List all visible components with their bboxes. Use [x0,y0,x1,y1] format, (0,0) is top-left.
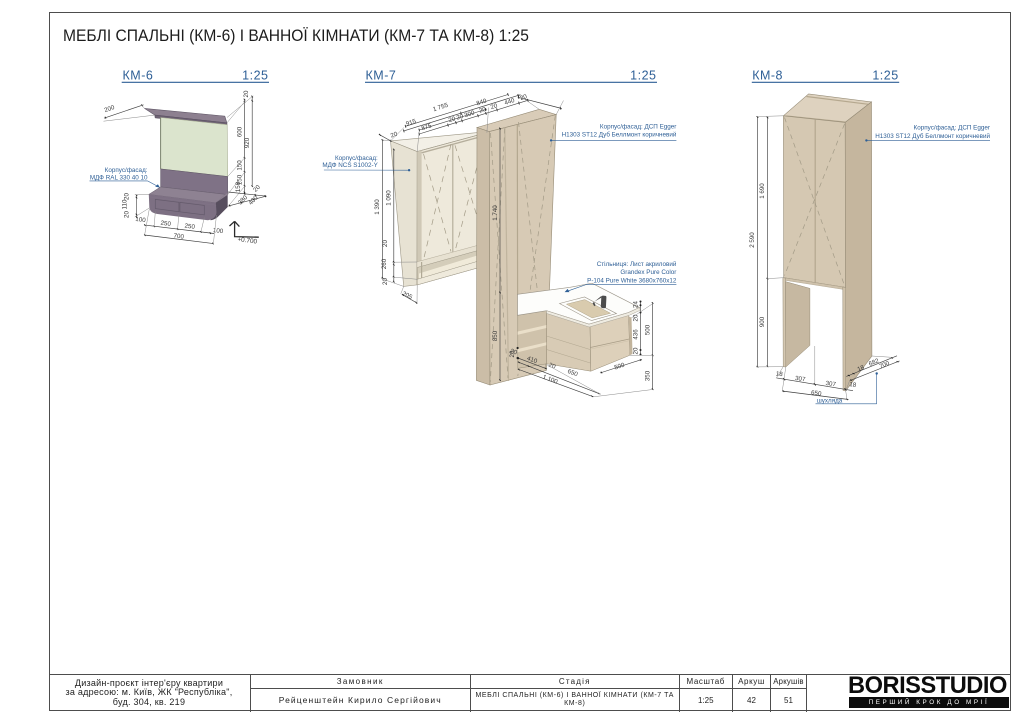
svg-text:307: 307 [795,375,807,383]
svg-text:150: 150 [236,160,243,171]
svg-text:Корпус/фасад: ДСП Egger: Корпус/фасад: ДСП Egger [914,124,990,131]
svg-text:Стільниця: Лист акриловий: Стільниця: Лист акриловий [597,260,677,268]
svg-text:850: 850 [492,330,499,341]
svg-text:436: 436 [632,329,639,340]
svg-text:100: 100 [135,216,147,224]
svg-text:20: 20 [390,131,399,140]
svg-text:440: 440 [504,97,517,107]
svg-text:150: 150 [235,181,242,192]
svg-text:2 590: 2 590 [749,232,756,248]
svg-text:205: 205 [401,290,414,301]
svg-text:1 740: 1 740 [492,205,499,221]
svg-text:1:25: 1:25 [242,69,268,83]
svg-text:КМ-7: КМ-7 [366,69,397,83]
svg-text:20: 20 [252,183,262,193]
svg-text:700: 700 [878,360,891,371]
svg-text:18: 18 [849,381,857,389]
svg-text:260: 260 [381,258,388,269]
svg-text:500: 500 [614,361,627,371]
svg-text:КМ-8: КМ-8 [752,69,783,83]
svg-text:900: 900 [759,316,766,327]
svg-text:600: 600 [236,126,243,137]
svg-text:400: 400 [247,194,260,207]
svg-text:700: 700 [173,232,185,240]
svg-text:20: 20 [124,193,131,200]
svg-text:20: 20 [243,90,250,97]
svg-text:500: 500 [644,324,651,335]
svg-text:24: 24 [632,301,639,308]
svg-text:650: 650 [566,368,579,378]
svg-text:20: 20 [382,240,389,247]
svg-text:20: 20 [632,347,639,354]
svg-text:200: 200 [103,104,116,114]
svg-text:МДФ NCS S1002-Y: МДФ NCS S1002-Y [322,162,378,169]
svg-text:1 390: 1 390 [374,199,381,215]
svg-text:920: 920 [244,137,251,148]
svg-text:P-104 Pure White 3680x760x12: P-104 Pure White 3680x760x12 [587,278,677,285]
svg-text:250: 250 [184,223,196,231]
svg-text:20: 20 [124,211,131,218]
svg-text:110: 110 [122,199,129,209]
svg-text:307: 307 [825,380,837,388]
svg-text:+0.700: +0.700 [237,236,258,245]
svg-text:650: 650 [811,389,823,397]
svg-text:875: 875 [421,122,434,132]
svg-text:H1303 ST12 Дуб Беллмонт коричн: H1303 ST12 Дуб Беллмонт коричневий [562,131,677,139]
svg-text:Grandex Pure Color: Grandex Pure Color [620,269,676,276]
svg-text:915: 915 [405,118,418,128]
svg-text:Корпус/фасад:: Корпус/фасад: [105,167,148,174]
svg-text:1 090: 1 090 [386,190,393,206]
svg-text:1:25: 1:25 [630,69,656,83]
svg-text:250: 250 [160,220,172,228]
svg-text:1 755: 1 755 [432,102,449,114]
svg-text:КМ-6: КМ-6 [123,69,154,83]
svg-text:1 100: 1 100 [542,374,559,386]
svg-text:1 690: 1 690 [759,183,766,199]
svg-text:300: 300 [464,109,477,119]
svg-text:1:25: 1:25 [872,69,898,83]
svg-text:МДФ RAL 330 40 10: МДФ RAL 330 40 10 [90,174,148,181]
svg-text:380: 380 [237,194,250,207]
svg-text:20: 20 [382,278,389,285]
svg-text:H1303 ST12 Дуб Беллмонт коричн: H1303 ST12 Дуб Беллмонт коричневий [875,132,990,140]
svg-text:Корпус/фасад: ДСП Egger: Корпус/фасад: ДСП Egger [600,123,676,130]
svg-text:350: 350 [644,370,651,381]
svg-text:Корпус/фасад:: Корпус/фасад: [335,155,378,162]
